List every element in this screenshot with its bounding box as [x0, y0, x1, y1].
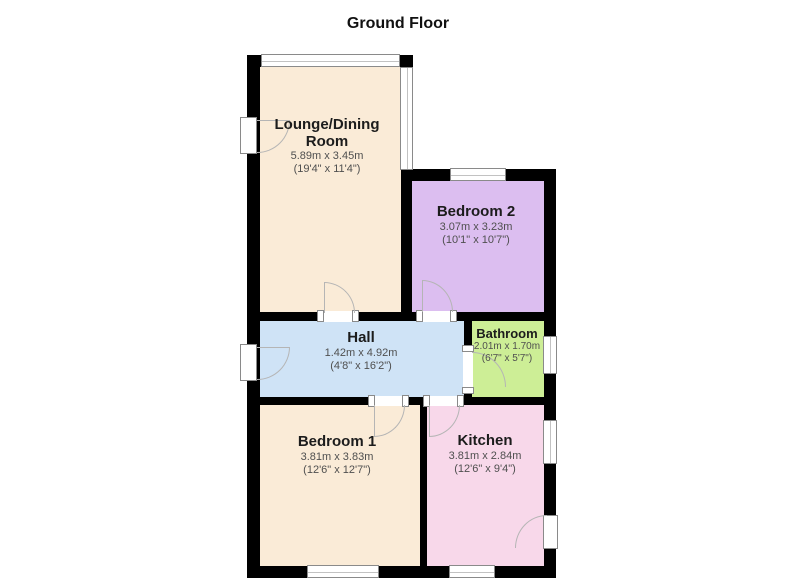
room-name: Bedroom 2: [437, 204, 515, 221]
wall-bedroom1-kitchen: [420, 397, 427, 567]
window-bathroom-right: [543, 336, 557, 374]
door-bathroom-jamb-top: [462, 345, 474, 352]
label-hall: Hall 1.42m x 4.92m (4'8" x 16'2"): [325, 330, 398, 373]
window-lounge-right: [400, 67, 413, 170]
room-dim-metric: 1.42m x 4.92m: [325, 347, 398, 360]
label-bathroom: Bathroom 2.01m x 1.70m (6'7" x 5'7"): [474, 327, 540, 364]
page-title: Ground Floor: [347, 15, 449, 33]
room-dim-metric: 5.89m x 3.45m: [275, 150, 380, 163]
label-kitchen: Kitchen 3.81m x 2.84m (12'6" x 9'4"): [449, 433, 522, 476]
floor-plan: Ground Floor: [0, 0, 800, 582]
room-lounge-dining: [260, 67, 401, 313]
door-lounge-exterior-leaf: [240, 117, 257, 154]
room-dim-imperial: (12'6" x 12'7"): [298, 464, 376, 477]
room-dim-imperial: (19'4" x 11'4"): [275, 163, 380, 176]
room-dim-imperial: (4'8" x 16'2"): [325, 360, 398, 373]
label-bedroom-1: Bedroom 1 3.81m x 3.83m (12'6" x 12'7"): [298, 434, 376, 477]
wall-hall-top: [247, 312, 550, 321]
room-dim-metric: 3.81m x 3.83m: [298, 451, 376, 464]
room-bedroom-1: [260, 405, 420, 567]
door-bedroom2-opening: [422, 311, 452, 322]
room-dim-imperial: (10'1" x 10'7"): [437, 234, 515, 247]
label-lounge-dining: Lounge/Dining Room 5.89m x 3.45m (19'4" …: [275, 117, 380, 176]
room-dim-metric: 2.01m x 1.70m: [474, 341, 540, 353]
room-name: Hall: [325, 330, 398, 347]
room-name: Bedroom 1: [298, 434, 376, 451]
door-bathroom-jamb-bottom: [462, 387, 474, 394]
room-name: Room: [275, 134, 380, 151]
window-bedroom1-bottom: [307, 565, 379, 578]
room-name: Bathroom: [474, 327, 540, 341]
room-dim-imperial: (6'7" x 5'7"): [474, 353, 540, 365]
window-lounge-top: [261, 54, 400, 67]
wall-exterior-bottom: [247, 566, 556, 578]
door-hall-lounge-jamb-left: [317, 310, 324, 322]
door-front-leaf: [240, 344, 257, 381]
room-dim-metric: 3.81m x 2.84m: [449, 450, 522, 463]
window-kitchen-right: [543, 420, 557, 464]
label-bedroom-2: Bedroom 2 3.07m x 3.23m (10'1" x 10'7"): [437, 204, 515, 247]
window-bedroom2-top: [450, 168, 506, 181]
room-dim-imperial: (12'6" x 9'4"): [449, 463, 522, 476]
room-name: Lounge/Dining: [275, 117, 380, 134]
window-kitchen-bottom: [449, 565, 495, 578]
room-name: Kitchen: [449, 433, 522, 450]
room-dim-metric: 3.07m x 3.23m: [437, 221, 515, 234]
